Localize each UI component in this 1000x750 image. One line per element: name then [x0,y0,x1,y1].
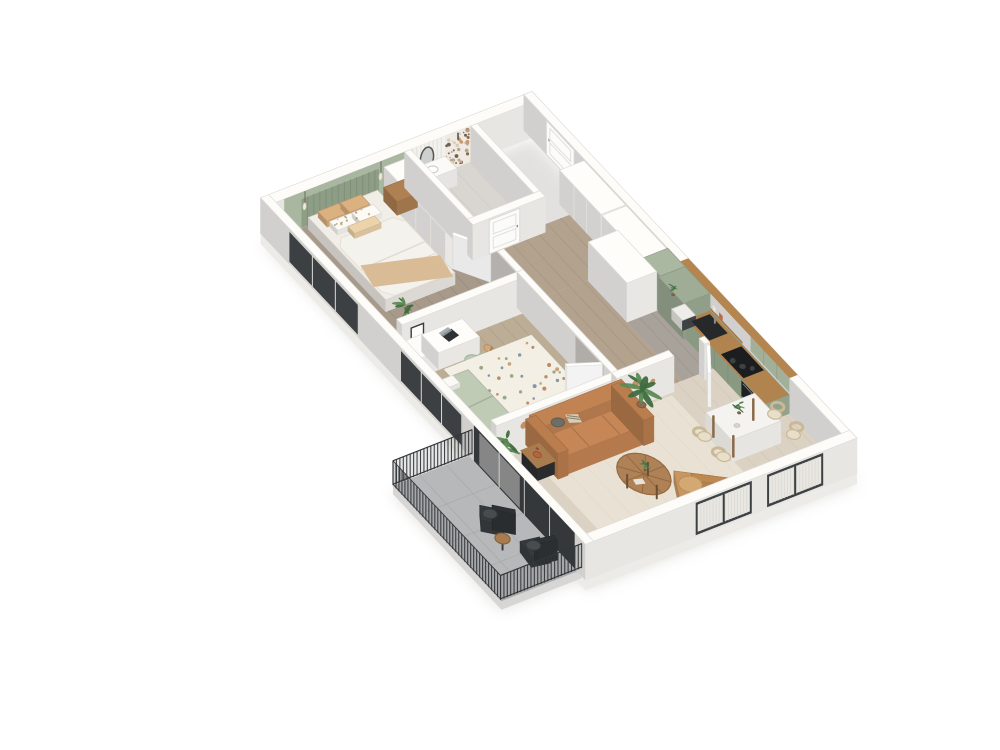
balcony-chair-1-cushion [483,509,498,519]
dining-chair-4-seat [787,430,801,440]
dining-bowl [734,424,740,428]
pendant-lamp-right [379,173,382,180]
floor-plan-render [0,0,1000,750]
floor-plan-canvas [0,0,1000,750]
sofa-pillow-gray [551,418,564,427]
balcony-chair-2-cushion [526,540,541,550]
dining-chair-2-seat [717,452,731,462]
balcony-table-top [495,533,510,544]
balcony-chair-1-back [492,505,515,535]
dining-chair-1-seat [698,432,712,442]
living-door-leaf [707,345,711,407]
pendant-lamp-left [303,203,306,210]
dining-chair-3-seat [768,410,782,420]
